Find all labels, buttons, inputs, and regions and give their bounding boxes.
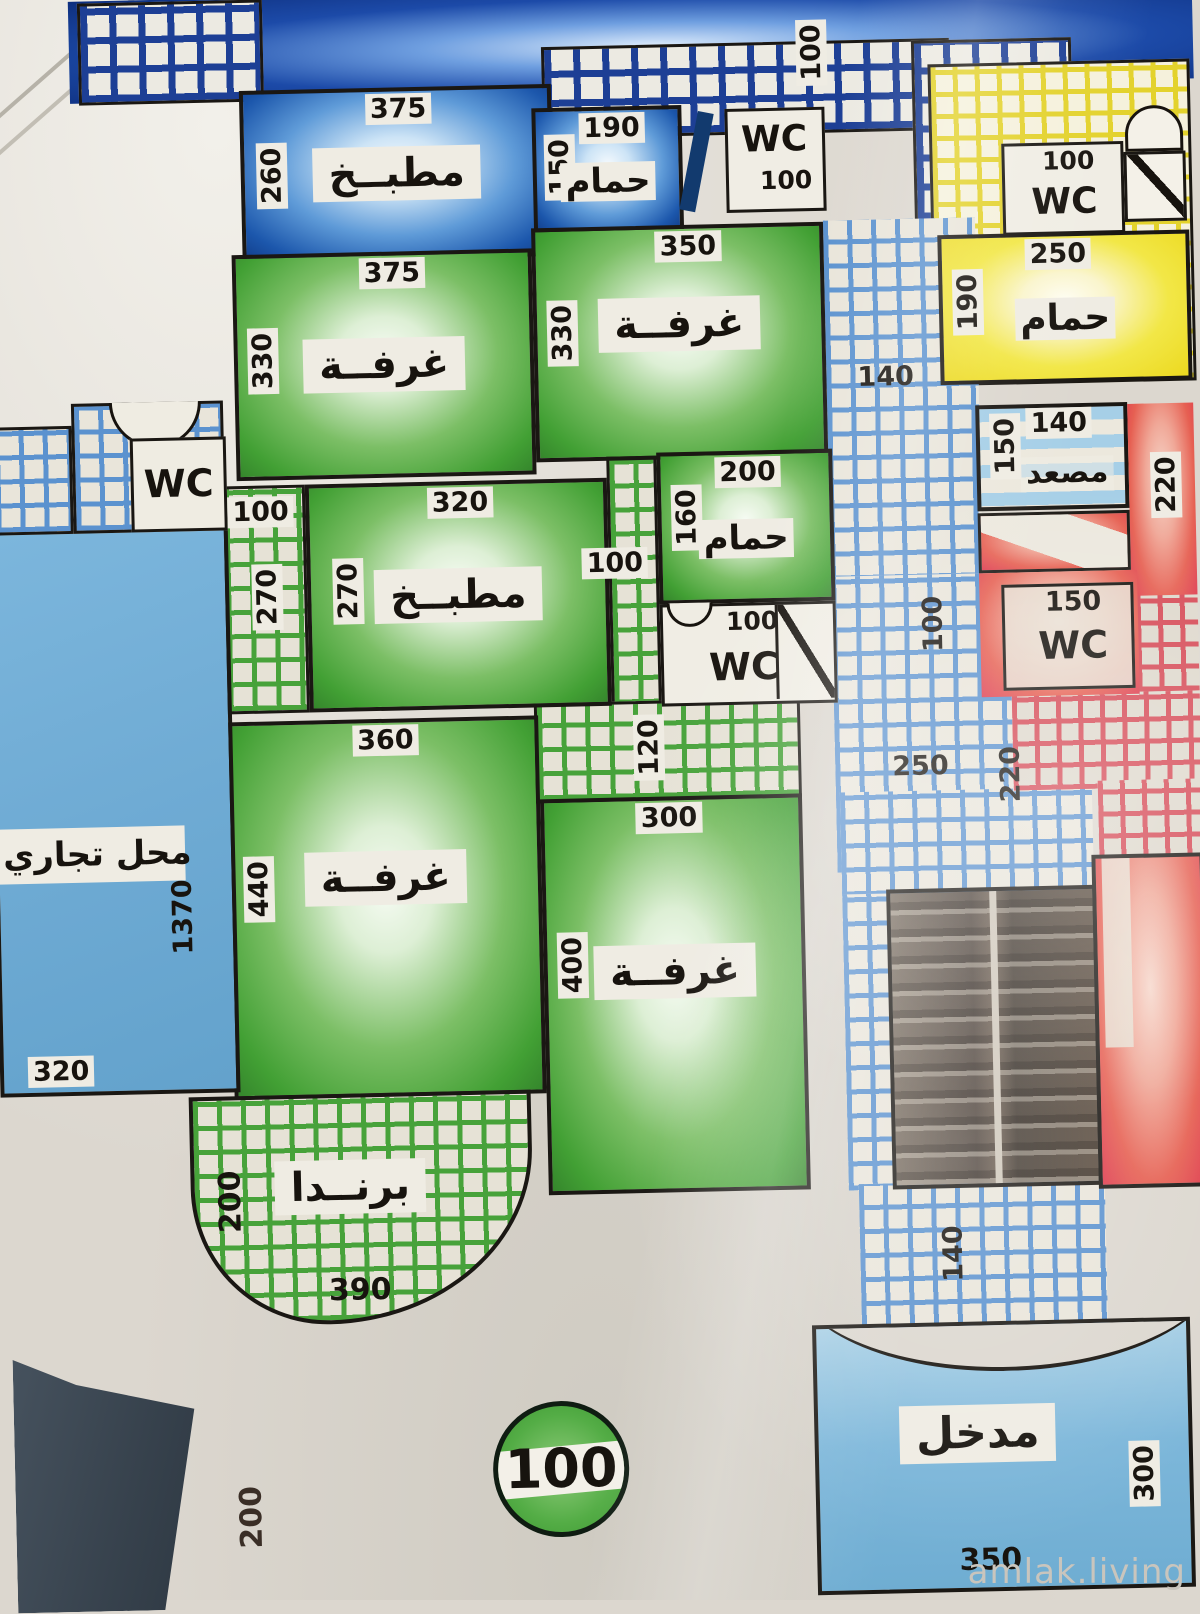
dim-side: 440	[243, 856, 276, 923]
dim-top: 375	[358, 257, 425, 290]
room-label: غرفــة	[593, 942, 756, 1000]
room-label: حمام	[698, 518, 794, 559]
room-label: غرفــة	[304, 849, 467, 907]
table-edge-dark	[12, 1345, 228, 1614]
dim-top: 375	[365, 93, 432, 126]
dim-top: 140	[1025, 407, 1092, 440]
room-label: مدخل	[899, 1402, 1056, 1464]
room-bedroom-1: 375 330 غرفــة	[232, 248, 537, 481]
hall-dim-side: 270	[251, 564, 284, 631]
room-label: غرفــة	[302, 336, 465, 394]
dim-side: 330	[546, 300, 579, 367]
room-wc-left: WC	[130, 436, 228, 532]
room-wc-blue: WC 100	[724, 107, 826, 213]
stairs-hatch-icon	[1123, 151, 1187, 222]
wc-label: WC	[736, 118, 813, 161]
balcony-grid-top-left	[77, 0, 264, 106]
corridor-dim: 100	[917, 590, 950, 657]
room-bath-green: 200 160 حمام	[656, 449, 835, 605]
stairs-landing	[978, 510, 1131, 573]
room-label: مصعد	[1021, 455, 1114, 492]
room-bedroom-4: 300 400 غرفــة	[540, 793, 811, 1195]
wc-label: WC	[1026, 180, 1103, 223]
corridor-grid-stair-top	[840, 787, 1094, 897]
room-red	[1091, 852, 1200, 1188]
commercial-shop: محل تجاري 1370 320	[0, 524, 241, 1097]
entrance-curve	[812, 1317, 1196, 1376]
wc-label: WC	[1033, 623, 1114, 668]
entry-width-badge: 100	[492, 1400, 631, 1539]
corridor-grid-stair-bottom: 140	[859, 1179, 1108, 1331]
balcony-dim: 100	[795, 19, 828, 86]
dim-side: 400	[557, 932, 590, 999]
red-hall-grid	[1012, 690, 1200, 790]
dim-side: 300	[1128, 1440, 1161, 1507]
red-hall-grid	[1098, 778, 1200, 860]
dim-side: 150	[989, 412, 1022, 479]
room-wc-red: 150 WC	[1001, 582, 1135, 691]
green-hall-left: 100 270	[221, 485, 310, 715]
corridor-dim: 140	[852, 361, 919, 394]
room-label: برنــدا	[274, 1158, 426, 1215]
room-label: حمام	[1015, 297, 1116, 341]
elevator: 140 150 مصعد	[975, 402, 1129, 511]
room-wc-green: 100 WC	[660, 601, 838, 707]
corridor-dim: 220	[994, 741, 1027, 808]
watermark: amlak.living	[968, 1552, 1186, 1592]
room-label: حمام	[560, 161, 656, 202]
red-side-strip: 220	[1127, 402, 1197, 595]
green-hall-middle: 100	[606, 455, 662, 708]
room-label: مطبــخ	[374, 566, 543, 624]
room-kitchen-green: 320 270 مطبــخ	[305, 478, 612, 713]
dim-bottom: 320	[28, 1056, 95, 1089]
room-bath-blue: 190 150 حمام	[531, 105, 684, 235]
staircase	[886, 885, 1103, 1190]
dim-top: 360	[352, 724, 419, 757]
dim-top: 350	[654, 230, 721, 263]
dim-side: 220	[1150, 451, 1183, 518]
corridor-dim: 250	[887, 750, 954, 783]
dim-side: 190	[952, 269, 985, 336]
room-label: محل تجاري	[0, 825, 186, 884]
dim-side: 200	[213, 1165, 249, 1238]
corridor-dim: 140	[937, 1220, 970, 1287]
wc-dim: 100	[755, 166, 818, 196]
left-hall-grid	[0, 426, 74, 536]
dim-top: 150	[1040, 585, 1107, 618]
room-bedroom-2: 350 330 غرفــة	[531, 222, 828, 463]
dim-top: 300	[636, 802, 703, 835]
wc-label: WC	[138, 462, 219, 507]
landing-wedge	[981, 513, 1128, 570]
dim-side: 260	[256, 142, 289, 209]
room-kitchen-blue: 375 260 مطبــخ	[239, 84, 555, 263]
red-room-divider	[1101, 858, 1133, 1048]
hall-dim: 120	[633, 714, 666, 781]
red-hall-grid	[1135, 582, 1199, 691]
room-label: غرفــة	[598, 295, 761, 353]
room-bath-yellow: 250 190 حمام	[937, 229, 1192, 385]
green-hall-lower: 120	[534, 697, 802, 803]
dim-top: 250	[1024, 238, 1091, 271]
dim-side: 1370	[167, 874, 200, 960]
hall-dim-top: 100	[227, 496, 294, 529]
floor-plan: 100 100 270 100 120 140 100 250 220 140 …	[0, 0, 1200, 1613]
room-bedroom-3: 360 440 غرفــة	[226, 715, 546, 1100]
wc-dim: 100	[1037, 147, 1100, 177]
ground-dim: 200	[234, 1481, 270, 1554]
hall-dim: 100	[581, 546, 648, 579]
room-wc-yellow: 100 WC	[1001, 141, 1125, 236]
dim-side: 330	[247, 328, 280, 395]
wc-dim: 100	[721, 607, 784, 637]
door-arc-icon	[667, 602, 714, 627]
dim-side: 270	[332, 558, 365, 625]
badge-dim: 100	[499, 1437, 623, 1502]
dim-bottom: 390	[324, 1272, 397, 1308]
dim-top: 320	[426, 486, 493, 519]
dim-top: 200	[714, 456, 781, 489]
veranda: 200 برنــدا 390	[189, 1090, 536, 1328]
room-label: مطبــخ	[312, 145, 481, 203]
wc-label: WC	[704, 645, 785, 690]
dim-top: 190	[578, 112, 645, 145]
